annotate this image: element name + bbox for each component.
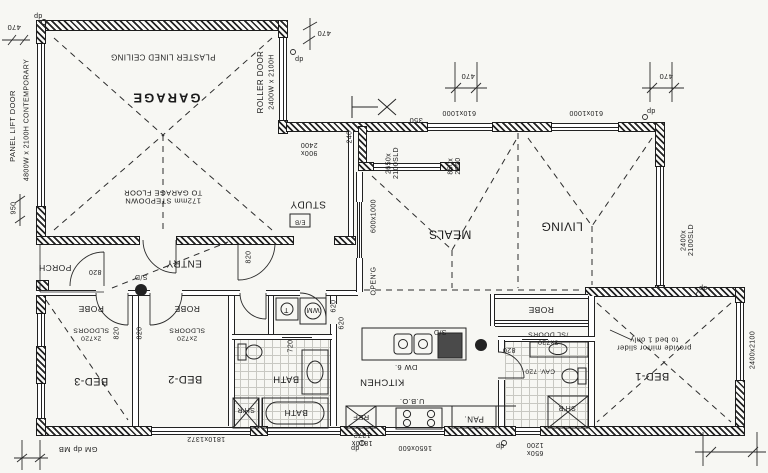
label-room-entry: ENTRY xyxy=(166,257,202,268)
label-downpipe-e: dp xyxy=(351,443,360,451)
hall-wall xyxy=(36,290,96,296)
floor-plan: GARAGEPLASTER LINED CEILING172mm STEPDOW… xyxy=(0,0,768,473)
label-window-2400x2100: 2400x2100 xyxy=(749,331,756,369)
label-opening-label: OPEN'G xyxy=(370,266,377,295)
wall xyxy=(340,426,386,436)
label-trough: T xyxy=(284,305,289,313)
label-washing-machine: WM xyxy=(306,305,319,313)
label-roller-door: ROLLER DOOR xyxy=(257,51,265,114)
wall xyxy=(286,122,428,132)
ens-floor-tiles xyxy=(505,342,588,428)
label-downpipe-f: dp xyxy=(496,441,505,449)
wall xyxy=(36,236,140,245)
label-panel-lift-door: PANEL LIFT DOOR xyxy=(9,90,17,162)
label-room-living: LIVING xyxy=(541,219,583,232)
wall xyxy=(540,426,745,436)
window-610x1000-b xyxy=(552,123,618,131)
ens-wall xyxy=(548,336,595,342)
label-room-bed3: BED-3 xyxy=(74,375,108,387)
label-door-820-meals: 820 xyxy=(245,251,252,264)
shower-screen xyxy=(258,398,263,426)
robe-wall xyxy=(490,294,588,299)
meals-wall xyxy=(356,258,363,292)
label-window-610x1000-a: 610x1000 xyxy=(442,108,476,116)
label-garage-ceiling-note: PLASTER LINED CEILING xyxy=(111,52,216,61)
robe-sliders xyxy=(495,320,588,327)
living-sliding-door-2400 xyxy=(656,167,664,285)
wall xyxy=(278,20,288,38)
label-dim-470-b: 470 xyxy=(659,72,673,80)
label-room-study: STUDY xyxy=(290,198,326,209)
label-window-1650x600: 1650x600 xyxy=(398,443,432,451)
wall xyxy=(36,418,46,436)
walkway-ens-wall xyxy=(498,340,505,352)
label-panel-lift-door-size: 4800W x 2100H CONTEMPORARY xyxy=(23,59,30,181)
label-pantry: PAN. xyxy=(464,414,484,423)
garage-roller-door xyxy=(279,38,287,120)
label-room-bed1: BED-1 xyxy=(635,370,669,382)
label-smoke-detector-hall: S/D xyxy=(135,272,148,280)
label-garage-stepdown-note: 172mm STEPDOWN TO GARAGE FLOOR xyxy=(124,188,202,205)
label-dishwasher: DW 6. xyxy=(395,363,418,371)
label-smoke-detector-kitchen: S/D xyxy=(434,327,447,335)
ens-window-650x1200 xyxy=(516,427,540,435)
wall xyxy=(440,162,460,171)
label-sliding-door-2400: 2400x 2100SLD xyxy=(681,224,696,256)
label-study-opening-900x2400: 900x 2400 xyxy=(300,140,317,156)
ens-bed1-wall xyxy=(588,296,595,426)
label-dim-470-c: 470 xyxy=(317,29,331,37)
meals-wall xyxy=(356,172,363,202)
wall xyxy=(735,287,745,303)
label-downpipe-c: dp xyxy=(647,106,656,114)
label-dim-470-a: 470 xyxy=(461,72,475,80)
wall xyxy=(358,162,374,171)
bath-wall xyxy=(312,334,332,340)
label-dim-950: 950 xyxy=(10,202,17,215)
wall xyxy=(36,346,46,384)
ceiling-dash-lines xyxy=(46,38,731,422)
wall xyxy=(492,122,552,132)
label-room-meals: MEALS xyxy=(429,227,472,240)
label-room-kitchen: KITCHEN xyxy=(360,376,405,387)
label-robe-bed1: ROBE xyxy=(528,304,554,314)
label-door-620-laundry: 620 xyxy=(338,317,345,330)
label-mirror-slider-note: provide mirror slider to bed 1 only xyxy=(617,335,692,352)
wall xyxy=(334,236,356,245)
label-window-650x1200: 650x 1200 xyxy=(526,440,543,456)
label-downpipe-b: dp xyxy=(295,54,304,62)
laundry-kitchen-wall xyxy=(330,296,337,304)
garage-panel-lift-door xyxy=(37,44,45,206)
wall xyxy=(36,20,46,44)
bed3-window-850-a xyxy=(37,314,45,346)
label-window-600x1000: 600x1000 xyxy=(370,199,377,233)
label-roller-door-size: 2400W x 2100H xyxy=(268,54,275,109)
label-room-bed2: BED-2 xyxy=(168,373,202,385)
label-window-1810x1372-a: 1810x1372 xyxy=(187,434,225,442)
bed3-window-850-b xyxy=(37,384,45,418)
kitchen-window-1650x600 xyxy=(386,427,444,435)
bed2-bath-wall xyxy=(228,296,235,426)
label-door-820-entry: 820 xyxy=(89,267,102,275)
wall xyxy=(585,287,745,297)
bed3-bed2-wall xyxy=(132,296,139,426)
wall xyxy=(655,122,665,167)
label-door-820-bed3: 820 xyxy=(113,327,120,340)
wc-laundry-wall xyxy=(268,296,274,336)
label-room-garage: GARAGE xyxy=(131,90,200,105)
window-610x1000-a xyxy=(428,123,492,131)
bath-window-1810x1372 xyxy=(268,427,340,435)
wall xyxy=(36,20,288,31)
label-fridge: REF xyxy=(353,413,369,421)
wall xyxy=(250,426,268,436)
label-robe-bed2-doors: 2x720 SLDOORS xyxy=(169,326,205,341)
wall xyxy=(36,426,152,436)
label-room-porch: PORCH xyxy=(39,262,72,272)
label-downpipe-a: dp xyxy=(34,11,43,19)
study-wall xyxy=(348,131,354,236)
bed1-window-2400x2100 xyxy=(736,303,744,380)
label-gas-meter-downpipe-meterbox: GM dp MB xyxy=(58,445,97,453)
wall xyxy=(176,236,294,245)
meals-opening xyxy=(357,202,362,258)
label-dim-470-d: 470 xyxy=(7,23,21,31)
bath-wall xyxy=(232,334,284,340)
label-window-610x1000-b: 610x1000 xyxy=(569,108,603,116)
wall xyxy=(36,206,46,238)
ens-cavity-door xyxy=(522,336,548,342)
wall xyxy=(444,426,516,436)
label-robe-bed2: ROBE xyxy=(174,303,200,313)
bath-floor-tiles xyxy=(232,336,330,428)
bath-cavity-door-720 xyxy=(282,334,312,340)
bed2-window-1810x1372 xyxy=(152,427,250,435)
label-robe-bed3-doors: 2x720 SLDOORS xyxy=(73,326,109,341)
meals-sliding-door-2650 xyxy=(374,163,440,171)
walkway-ens-wall xyxy=(498,380,505,426)
label-under-bench-oven: U.B.O. xyxy=(400,397,425,405)
label-robe-bed3: ROBE xyxy=(78,303,104,313)
label-elec-board: E/B xyxy=(295,218,306,225)
